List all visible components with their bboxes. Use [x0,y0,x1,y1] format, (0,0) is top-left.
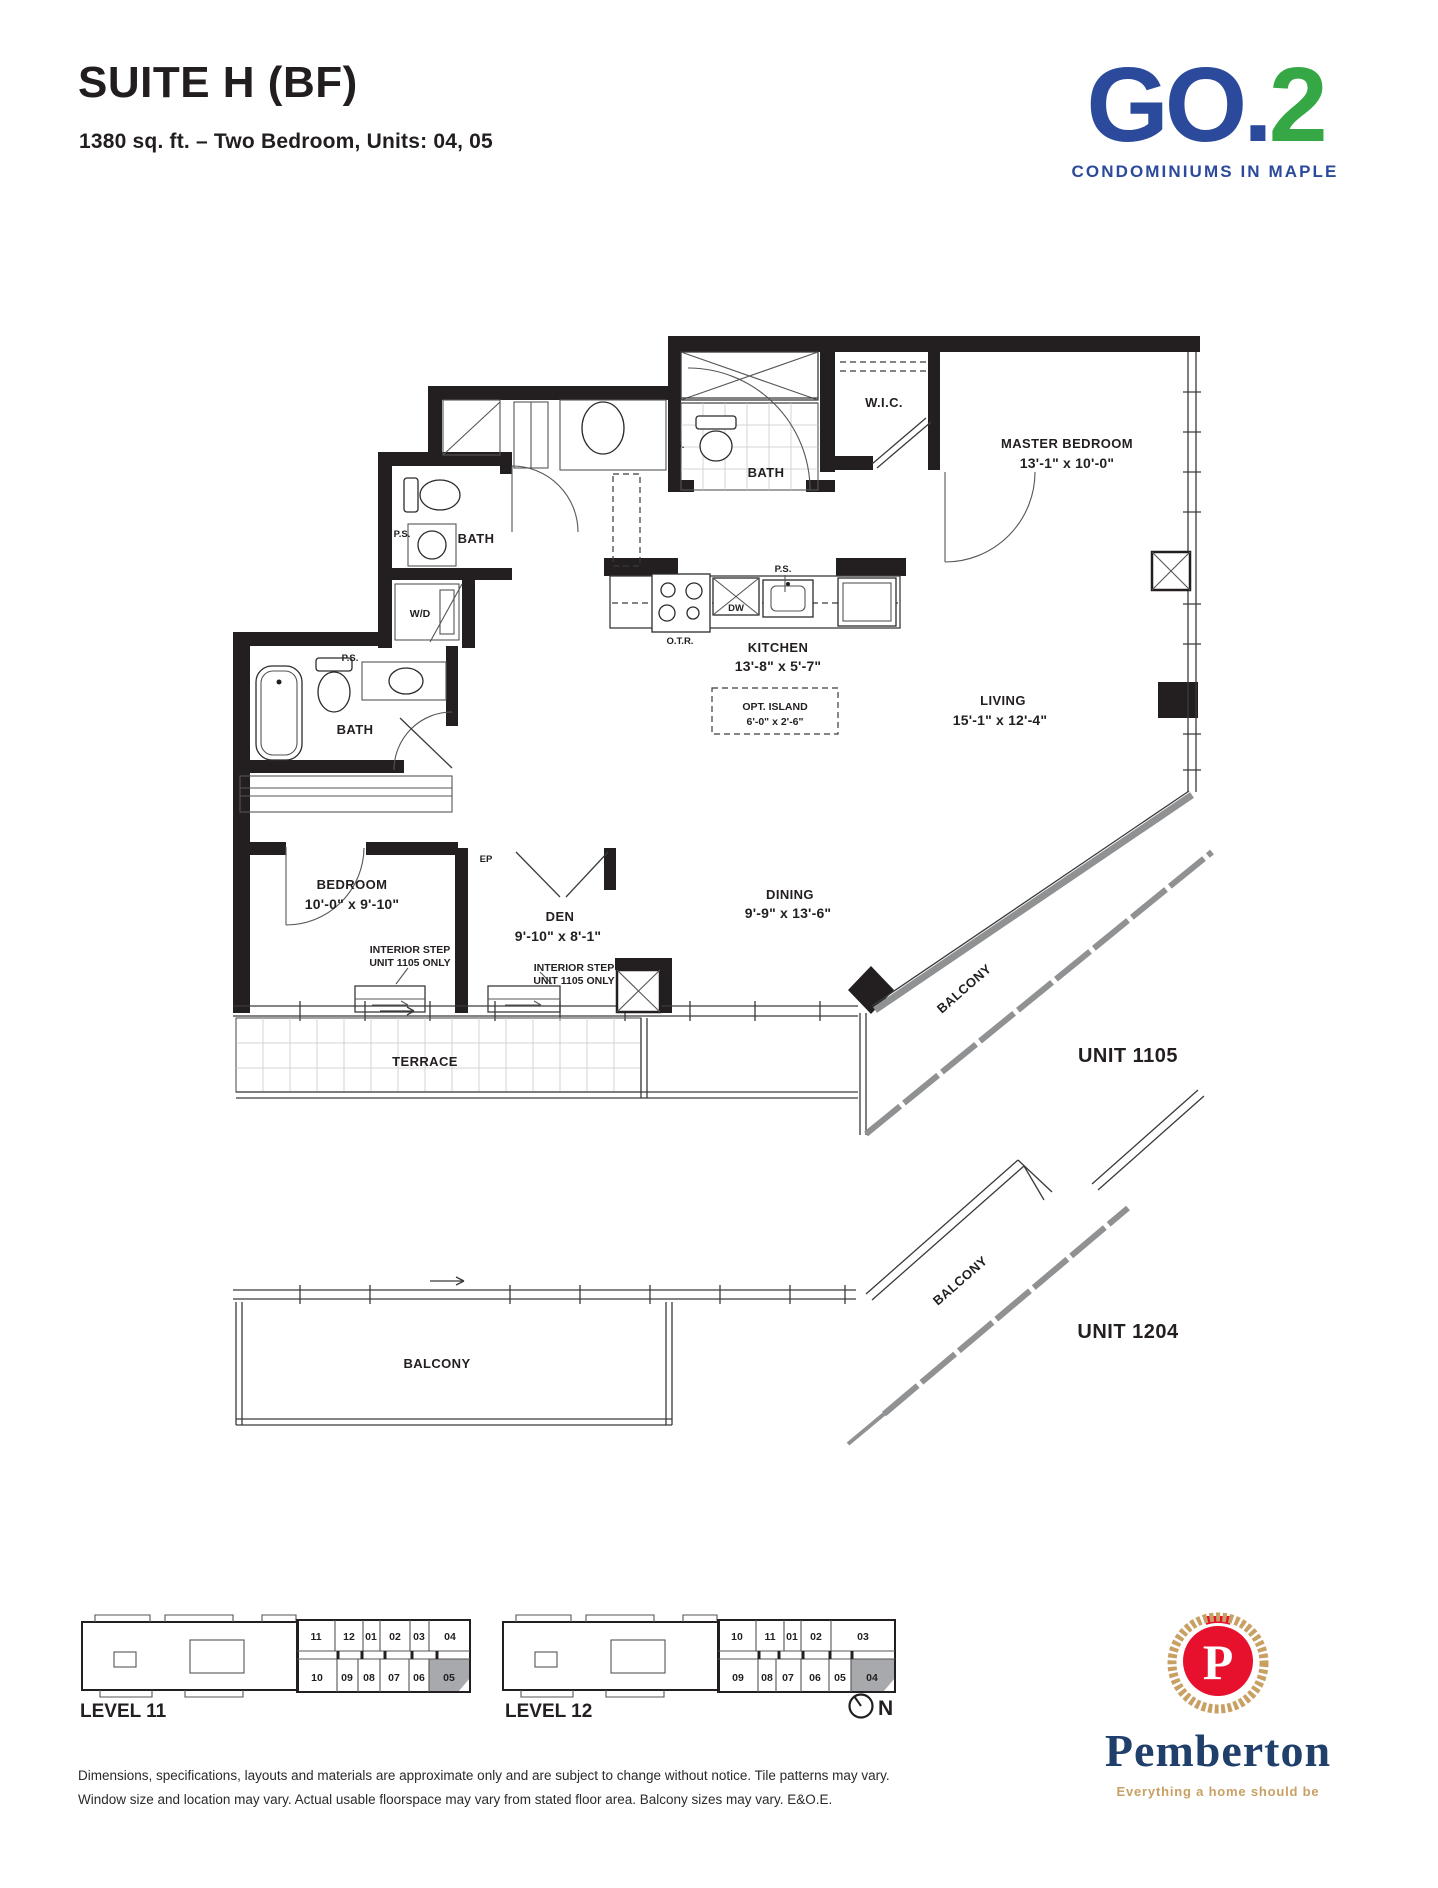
floorplan-page: SUITE H (BF) 1380 sq. ft. – Two Bedroom,… [0,0,1438,1888]
ps-label: P.S. [342,653,359,664]
keyplan-cell: 09 [341,1672,353,1684]
sink [418,531,446,559]
fridge [838,578,896,626]
pemberton-wordmark: Pemberton [1105,1725,1331,1776]
bath2-label: BATH [458,531,495,546]
structural-column [1158,682,1198,718]
master-bedroom-dims: 13'-1" x 10'-0" [1020,455,1115,471]
toilet [696,416,736,429]
ps-label: P.S. [394,529,411,540]
master-bath-label: BATH [748,465,785,480]
keyplan-cell: 02 [810,1631,822,1643]
kitchen-dims: 13'-8" x 5'-7" [735,658,822,674]
unit-1105-label: UNIT 1105 [1078,1045,1178,1067]
wd-label: W/D [410,608,431,620]
balcony-label: BALCONY [934,961,994,1016]
compass: N [850,1695,894,1721]
balcony-railing [884,1208,1128,1414]
toilet [404,478,418,512]
balcony-label: BALCONY [930,1253,990,1308]
plan-fixtures [240,352,1190,1012]
plan-doors [286,368,1035,925]
compass-north-label: N [878,1697,893,1720]
keyplan-cell-highlighted: 05 [443,1672,455,1684]
level-12-label: LEVEL 12 [505,1701,592,1722]
level-11-label: LEVEL 11 [80,1701,167,1722]
keyplan-cell: 06 [809,1672,821,1684]
master-bedroom-label: MASTER BEDROOM [1001,436,1133,451]
balcony-railing [866,852,1212,1134]
plan-outdoor [236,852,1212,1444]
pantry [613,474,640,566]
pemberton-tagline: Everything a home should be [1117,1784,1320,1799]
ps-label: P.S. [668,440,685,451]
keyplan-cell: 05 [834,1672,846,1684]
corner-column [848,966,894,1014]
bath3-label: BATH [337,722,374,737]
terrace-label: TERRACE [392,1054,458,1069]
sink [582,402,624,454]
keyplan-cell: 06 [413,1672,425,1684]
keyplan-cell: 07 [782,1672,794,1684]
ps-label: P.S. [775,564,792,575]
keyplan-cell: 11 [310,1631,321,1643]
interior-step-unit: UNIT 1105 ONLY [533,975,614,987]
bedroom-closet [240,776,452,812]
keyplan-cell: 12 [343,1631,355,1643]
keyplan-cell: 10 [731,1631,743,1643]
disclaimer: Dimensions, specifications, layouts and … [78,1764,1018,1812]
interior-step-unit: UNIT 1105 ONLY [369,957,450,969]
bedroom-dims: 10'-0" x 9'-10" [305,896,400,912]
dining-label: DINING [766,887,814,902]
keyplan-cell-highlighted: 04 [866,1672,878,1684]
wic-door [872,418,931,468]
angled-window-wall [875,795,1192,1010]
keyplan-cell: 08 [761,1672,773,1684]
keyplan-cell: 08 [363,1672,375,1684]
unit-1204-label: UNIT 1204 [1077,1321,1179,1343]
disclaimer-line2: Window size and location may vary. Actua… [78,1788,1018,1812]
wic-label: W.I.C. [865,395,903,410]
living-dims: 15'-1" x 12'-4" [953,712,1048,728]
keyplan-cell: 10 [311,1672,323,1684]
keyplan-cell: 02 [389,1631,401,1643]
kitchen-label: KITCHEN [748,640,809,655]
keyplan-cell: 01 [365,1631,377,1643]
sliding-door-arrow [380,1007,414,1015]
floor-plan-drawing: P.S. BATH W.I.C. MASTER BEDROOM 13'-1" x… [0,0,1438,1888]
living-label: LIVING [980,693,1026,708]
keyplan-cell: 01 [786,1631,798,1643]
interior-step-label: INTERIOR STEP [534,962,615,974]
pemberton-logo: P Pemberton Everything a home should be [1105,1616,1331,1799]
den-label: DEN [546,909,575,924]
keyplan-cell: 11 [764,1631,775,1643]
ep-label: EP [480,854,493,865]
keyplan-cell: 03 [413,1631,425,1643]
island-dims: 6'-0" x 2'-6" [747,716,804,728]
dw-label: DW [728,603,744,614]
keyplan-level11: 11 12 01 02 03 04 10 09 08 07 06 05 LEVE… [80,1615,470,1722]
keyplan-cell: 09 [732,1672,744,1684]
keyplan-cell: 07 [388,1672,400,1684]
den-double-door [516,852,608,897]
pemberton-monogram: P [1203,1634,1234,1690]
den-dims: 9'-10" x 8'-1" [515,928,602,944]
sink [389,668,423,694]
disclaimer-line1: Dimensions, specifications, layouts and … [78,1764,1018,1788]
bedroom-label: BEDROOM [317,877,388,892]
stove [652,574,710,632]
wic-shelf [840,362,926,371]
keyplan-cell: 04 [444,1631,456,1643]
sliding-door-arrow [430,1277,464,1285]
keyplan-level12: 10 11 01 02 03 09 08 07 06 05 04 LEVEL 1… [503,1615,895,1722]
bottom-balcony-label: BALCONY [403,1356,470,1371]
dining-dims: 9'-9" x 13'-6" [745,905,832,921]
interior-step-label: INTERIOR STEP [370,944,451,956]
island-label: OPT. ISLAND [742,701,808,713]
otr-label: O.T.R. [667,636,694,647]
keyplan-cell: 03 [857,1631,869,1643]
